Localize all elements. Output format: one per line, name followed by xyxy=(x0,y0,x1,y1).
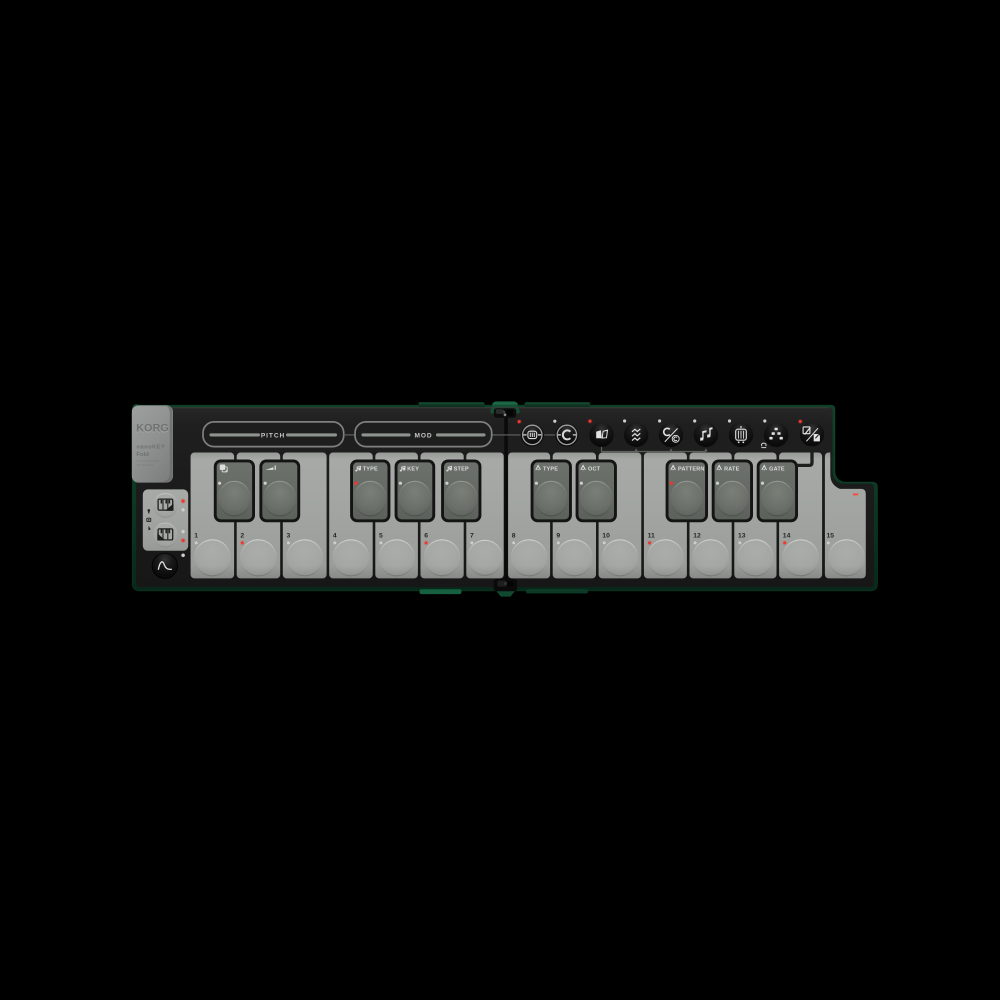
svg-text:15: 15 xyxy=(827,532,835,539)
svg-text:14: 14 xyxy=(783,532,791,539)
svg-text:KORG: KORG xyxy=(136,423,169,435)
svg-text:TYPE: TYPE xyxy=(363,466,378,472)
svg-text:STEP: STEP xyxy=(454,466,469,472)
svg-text:GATE: GATE xyxy=(769,466,785,472)
svg-text:4: 4 xyxy=(333,532,337,539)
svg-text:10: 10 xyxy=(602,532,610,539)
svg-text:1: 1 xyxy=(194,532,198,539)
svg-text:KEYBOARD: KEYBOARD xyxy=(136,463,154,467)
svg-text:12: 12 xyxy=(693,532,701,539)
svg-text:11: 11 xyxy=(648,532,655,539)
svg-text:Fold: Fold xyxy=(136,452,149,458)
svg-text:6: 6 xyxy=(424,532,428,539)
svg-text:3: 3 xyxy=(287,532,291,539)
svg-text:RATE: RATE xyxy=(724,466,739,472)
svg-text:OCT: OCT xyxy=(588,466,601,472)
svg-text:PATTERN: PATTERN xyxy=(678,466,705,472)
svg-text:2: 2 xyxy=(240,532,244,539)
svg-text:13: 13 xyxy=(738,532,746,539)
svg-text:nanoKEY: nanoKEY xyxy=(136,445,165,451)
svg-text:5: 5 xyxy=(379,532,383,539)
svg-text:PITCH: PITCH xyxy=(261,432,285,439)
svg-text:9: 9 xyxy=(556,532,560,539)
svg-text:8: 8 xyxy=(512,532,516,539)
svg-text:MOD: MOD xyxy=(414,432,432,439)
svg-text:TYPE: TYPE xyxy=(543,466,558,472)
svg-text:7: 7 xyxy=(470,532,474,539)
svg-text:KEY: KEY xyxy=(407,466,419,472)
